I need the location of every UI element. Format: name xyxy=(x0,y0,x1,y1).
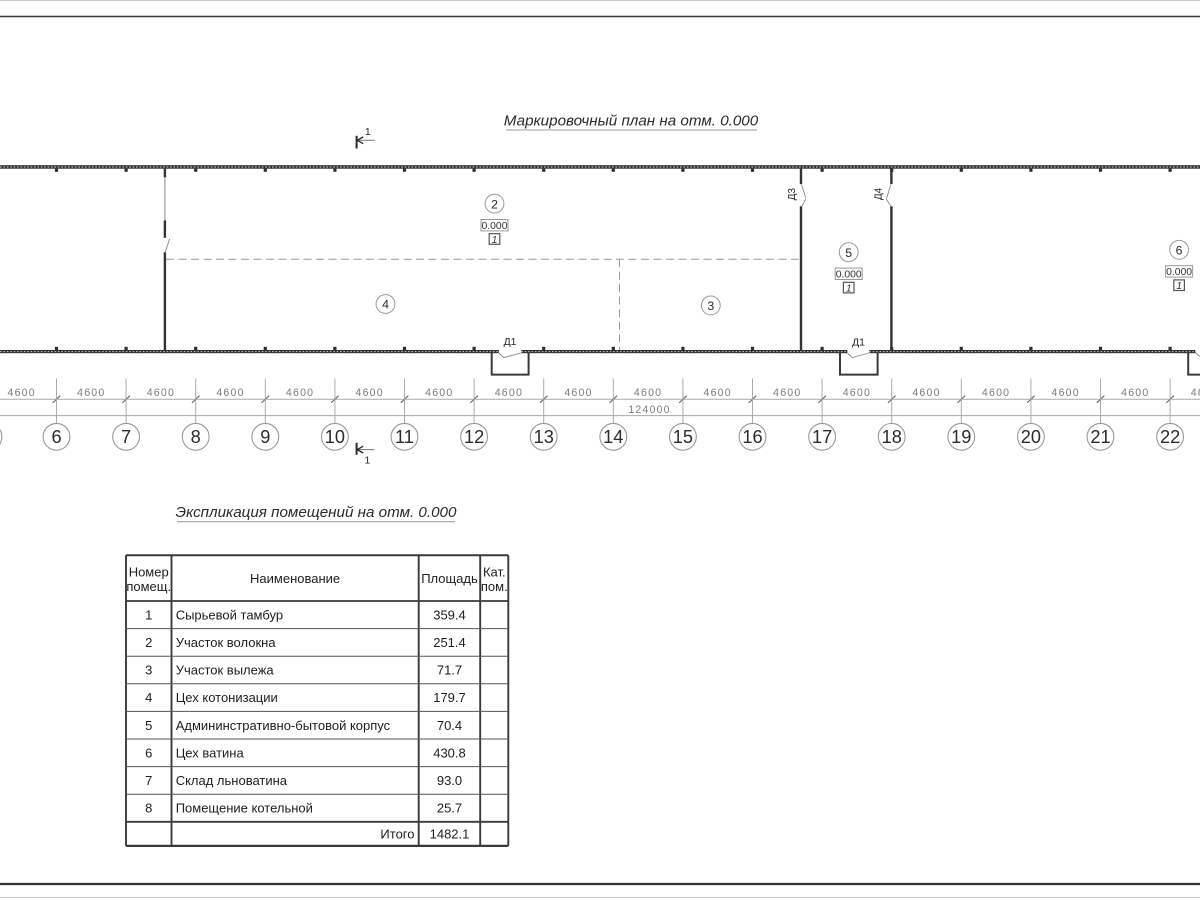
svg-text:4600: 4600 xyxy=(634,387,662,399)
svg-text:4600: 4600 xyxy=(1191,387,1200,399)
svg-text:4600: 4600 xyxy=(147,387,175,399)
svg-text:251.4: 251.4 xyxy=(433,635,466,650)
svg-text:4600: 4600 xyxy=(8,387,36,399)
svg-text:Цех ватина: Цех ватина xyxy=(176,745,245,760)
svg-text:2: 2 xyxy=(491,197,498,211)
svg-text:15: 15 xyxy=(673,427,693,447)
svg-text:6: 6 xyxy=(51,427,61,447)
svg-text:Экспликация помещений на отм.: Экспликация помещений на отм. 0.000 xyxy=(176,504,457,521)
svg-text:70.4: 70.4 xyxy=(437,718,462,733)
svg-text:430.8: 430.8 xyxy=(433,745,466,760)
svg-text:Итого: Итого xyxy=(380,826,414,841)
svg-text:179.7: 179.7 xyxy=(433,690,466,705)
svg-text:Наименование: Наименование xyxy=(250,571,340,586)
svg-text:пом.: пом. xyxy=(481,579,508,594)
svg-text:7: 7 xyxy=(145,773,152,788)
svg-text:6: 6 xyxy=(145,745,152,760)
svg-text:14: 14 xyxy=(603,427,623,447)
svg-text:1: 1 xyxy=(846,284,852,295)
svg-text:3: 3 xyxy=(145,663,152,678)
svg-text:10: 10 xyxy=(325,427,345,447)
svg-text:1: 1 xyxy=(492,235,498,246)
svg-text:4600: 4600 xyxy=(982,387,1010,399)
svg-text:3: 3 xyxy=(707,299,714,313)
svg-text:8: 8 xyxy=(145,801,152,816)
svg-text:Цех котонизации: Цех котонизации xyxy=(176,690,278,705)
svg-text:18: 18 xyxy=(882,427,902,447)
svg-text:71.7: 71.7 xyxy=(437,663,462,678)
svg-text:9: 9 xyxy=(260,427,270,447)
svg-text:Д1: Д1 xyxy=(504,337,517,348)
svg-text:4600: 4600 xyxy=(216,387,244,399)
svg-text:4: 4 xyxy=(145,690,152,705)
svg-text:Д3: Д3 xyxy=(787,188,798,201)
svg-text:16: 16 xyxy=(742,427,762,447)
svg-text:4600: 4600 xyxy=(1121,387,1149,399)
svg-text:4600: 4600 xyxy=(425,387,453,399)
svg-text:6: 6 xyxy=(1176,244,1183,258)
svg-text:1: 1 xyxy=(145,607,152,622)
svg-text:Д1: Д1 xyxy=(852,338,865,349)
svg-text:помещ.: помещ. xyxy=(126,579,171,594)
svg-text:21: 21 xyxy=(1090,427,1110,447)
svg-text:Площадь: Площадь xyxy=(421,571,478,586)
svg-text:25.7: 25.7 xyxy=(437,801,462,816)
svg-text:19: 19 xyxy=(951,427,971,447)
svg-text:Кат.: Кат. xyxy=(483,564,506,579)
svg-text:Помещение котельной: Помещение котельной xyxy=(176,801,313,816)
svg-text:5: 5 xyxy=(145,718,152,733)
svg-text:5: 5 xyxy=(845,246,852,260)
svg-text:8: 8 xyxy=(191,427,201,447)
svg-text:Д4: Д4 xyxy=(874,187,885,200)
svg-text:Участок волокна: Участок волокна xyxy=(176,635,277,650)
svg-text:1: 1 xyxy=(365,126,371,138)
svg-text:359.4: 359.4 xyxy=(433,607,466,622)
svg-text:22: 22 xyxy=(1160,427,1180,447)
svg-text:1: 1 xyxy=(1176,281,1182,292)
svg-text:0.000: 0.000 xyxy=(836,269,862,280)
svg-text:2: 2 xyxy=(145,635,152,650)
svg-text:4600: 4600 xyxy=(773,387,801,399)
svg-text:0.000: 0.000 xyxy=(1166,267,1192,278)
svg-text:11: 11 xyxy=(395,427,414,447)
svg-text:1482.1: 1482.1 xyxy=(430,826,470,841)
svg-text:4600: 4600 xyxy=(495,387,523,399)
svg-text:12: 12 xyxy=(464,427,484,447)
svg-text:4600: 4600 xyxy=(356,387,384,399)
svg-text:4600: 4600 xyxy=(77,387,105,399)
svg-text:93.0: 93.0 xyxy=(437,773,462,788)
svg-text:Сырьевой тамбур: Сырьевой тамбур xyxy=(176,607,283,622)
svg-text:1: 1 xyxy=(364,455,370,467)
svg-text:4600: 4600 xyxy=(912,387,940,399)
svg-text:17: 17 xyxy=(812,427,832,447)
svg-text:Маркировочный план на отм. 0.0: Маркировочный план на отм. 0.000 xyxy=(504,112,759,129)
svg-text:4600: 4600 xyxy=(1052,387,1080,399)
svg-text:124000: 124000 xyxy=(628,404,671,416)
svg-text:4600: 4600 xyxy=(286,387,314,399)
svg-text:4: 4 xyxy=(382,298,389,312)
svg-text:4600: 4600 xyxy=(704,387,732,399)
svg-text:4600: 4600 xyxy=(843,387,871,399)
svg-text:7: 7 xyxy=(121,427,131,447)
svg-text:Склад льноватина: Склад льноватина xyxy=(176,773,288,788)
svg-text:13: 13 xyxy=(534,427,554,447)
svg-text:Участок вылежа: Участок вылежа xyxy=(176,663,275,678)
svg-text:4600: 4600 xyxy=(564,387,592,399)
svg-text:20: 20 xyxy=(1021,427,1041,447)
svg-text:Админинстративно-бытовой корпу: Админинстративно-бытовой корпус xyxy=(176,718,391,733)
svg-text:Номер: Номер xyxy=(129,564,169,579)
svg-text:0.000: 0.000 xyxy=(481,221,507,232)
